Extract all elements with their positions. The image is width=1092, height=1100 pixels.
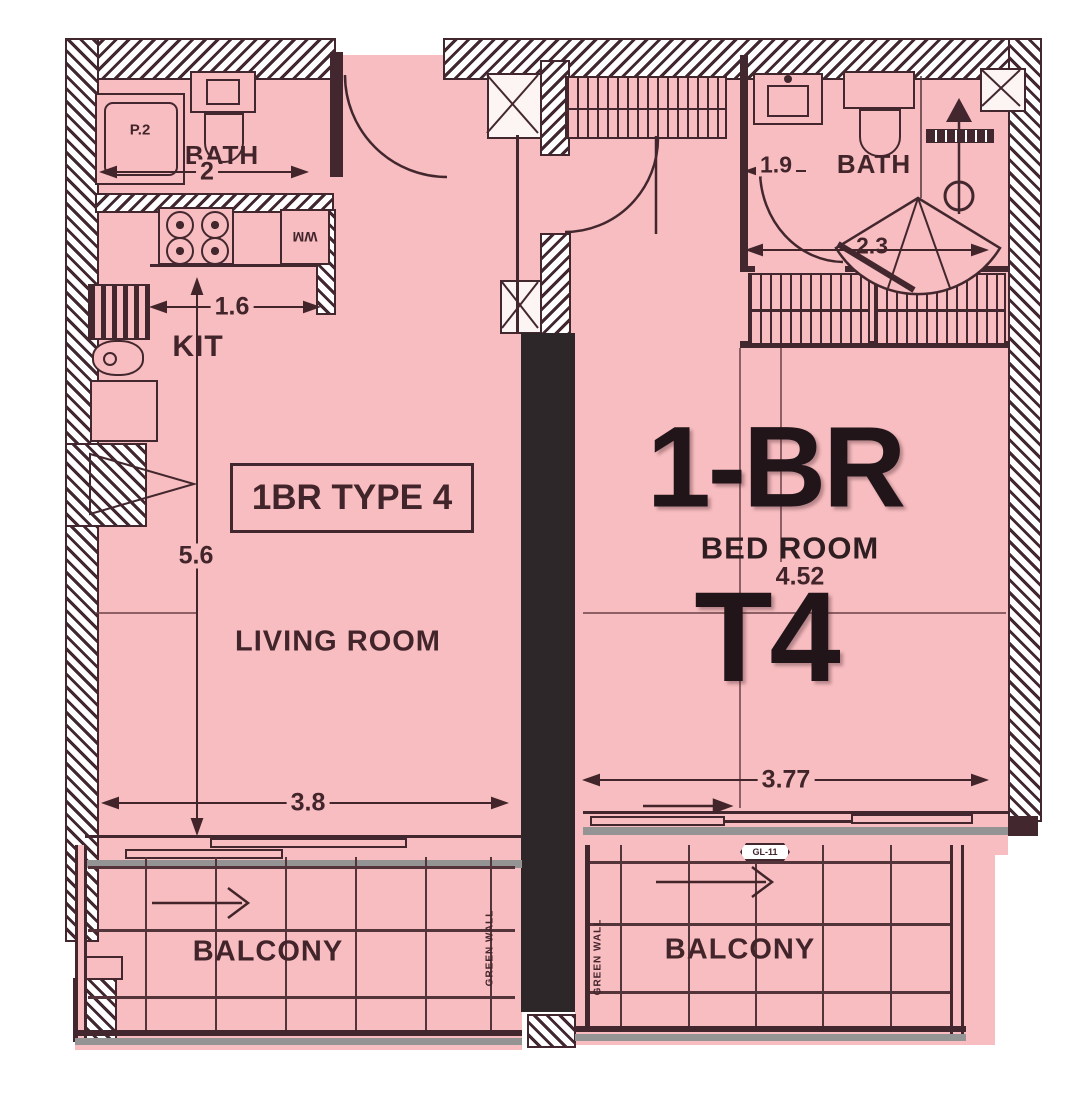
title-box: 1BR TYPE 4 bbox=[230, 463, 474, 533]
wardrobe-rail bbox=[567, 108, 725, 111]
dim-bath-right-width: 2.3 bbox=[852, 235, 892, 258]
shower-tray-label: P.2 bbox=[130, 123, 151, 138]
burner-icon bbox=[201, 237, 229, 265]
balcony-left-edge-shadow bbox=[75, 1038, 522, 1045]
railing-rail bbox=[590, 923, 950, 926]
railing-rail bbox=[590, 861, 950, 864]
railing-post bbox=[822, 845, 824, 1026]
wall-right bbox=[1008, 38, 1042, 822]
balcony-left-edge bbox=[75, 1030, 522, 1036]
bedroom-wardrobe-a bbox=[748, 273, 870, 345]
bedroom-slider-panel-left bbox=[590, 816, 725, 826]
toilet-tank-inner bbox=[206, 79, 240, 105]
living-slider-panel-right bbox=[210, 838, 407, 848]
wall-right-cap bbox=[1008, 816, 1038, 836]
burner-icon bbox=[166, 211, 194, 239]
sink-drain-icon bbox=[103, 352, 117, 366]
mid-shaft-box bbox=[500, 280, 544, 334]
dim-bath-right-entry: 1.9 bbox=[756, 154, 796, 177]
balcony-right-edge bbox=[575, 1026, 966, 1032]
living-slider-panel-left bbox=[125, 849, 283, 859]
dim-living-height: 5.6 bbox=[175, 544, 218, 569]
bedroom-label: BED ROOM bbox=[701, 533, 880, 564]
balcony-right-wall bbox=[950, 845, 964, 1035]
party-wall-shaft bbox=[521, 333, 575, 1012]
bath-right-sill-b bbox=[845, 266, 1008, 272]
entry-wardrobe bbox=[565, 76, 727, 139]
green-wall-left-label: GREEN WALL bbox=[485, 910, 496, 987]
shower-head-bar bbox=[926, 129, 994, 143]
toilet-tank bbox=[843, 71, 915, 109]
railing-post bbox=[620, 845, 622, 1026]
fridge-counter bbox=[90, 380, 158, 442]
balcony-right-inner-wall bbox=[585, 845, 590, 1030]
railing-rail bbox=[590, 991, 950, 994]
mid-pier bbox=[540, 233, 571, 336]
balcony-right-label: BALCONY bbox=[665, 936, 815, 965]
vanity-basin bbox=[767, 85, 809, 117]
kitchen-sink bbox=[92, 340, 144, 376]
burner-icon bbox=[201, 211, 229, 239]
green-wall-right-label: GREEN WALL bbox=[593, 919, 604, 996]
dim-kitchen: 1.6 bbox=[211, 295, 254, 320]
unit-type-label: T4 bbox=[694, 574, 837, 702]
living-room-label: LIVING ROOM bbox=[235, 628, 441, 657]
left-wall-block bbox=[65, 443, 147, 527]
shaft-foot-pier bbox=[527, 1014, 576, 1048]
floor-plan: GL-11 bbox=[0, 0, 1092, 1100]
corridor-wall bbox=[516, 135, 519, 333]
kitchen-label: KIT bbox=[172, 332, 223, 362]
bedroom-window-sill bbox=[583, 827, 1008, 835]
bath-left-side-wall bbox=[330, 52, 343, 177]
burner-icon bbox=[166, 237, 194, 265]
dim-living-width: 3.8 bbox=[287, 791, 330, 816]
washing-machine-label: WM bbox=[293, 230, 318, 244]
dim-bedroom-width: 3.77 bbox=[758, 768, 815, 793]
dim-bath-left: 2 bbox=[196, 160, 218, 185]
railing-post bbox=[890, 845, 892, 1026]
balcony-right-edge-shadow bbox=[575, 1034, 966, 1041]
balcony-left-wall bbox=[75, 845, 87, 1045]
glass-tag-label: GL-11 bbox=[752, 847, 777, 857]
entry-shaft-box bbox=[487, 73, 544, 139]
shower-tray-inner bbox=[104, 102, 178, 176]
wardrobe-rail bbox=[750, 309, 868, 312]
glass-tag: GL-11 bbox=[740, 843, 790, 861]
railing-rail bbox=[88, 996, 515, 999]
bath-right-label: BATH bbox=[837, 151, 911, 177]
wardrobe-rail bbox=[876, 309, 1004, 312]
water-heater bbox=[88, 284, 150, 340]
bedroom-slider-track bbox=[723, 820, 853, 823]
faucet-icon bbox=[784, 75, 792, 83]
railing-post bbox=[425, 857, 427, 1030]
bedroom-wardrobe-b bbox=[874, 273, 1006, 345]
bedroom-bath-wall bbox=[740, 55, 748, 268]
railing-post bbox=[355, 857, 357, 1030]
railing-post bbox=[145, 857, 147, 1030]
railing-rail bbox=[88, 866, 515, 869]
bedroom-slider-panel-right bbox=[851, 814, 973, 824]
wall-corner-shaft bbox=[980, 68, 1026, 112]
railing-rail bbox=[88, 929, 515, 932]
bath-right-sill-a bbox=[740, 266, 755, 272]
unit-label: 1-BR bbox=[647, 411, 903, 526]
balcony-left-label: BALCONY bbox=[193, 938, 343, 967]
title-box-label: 1BR TYPE 4 bbox=[252, 478, 452, 518]
